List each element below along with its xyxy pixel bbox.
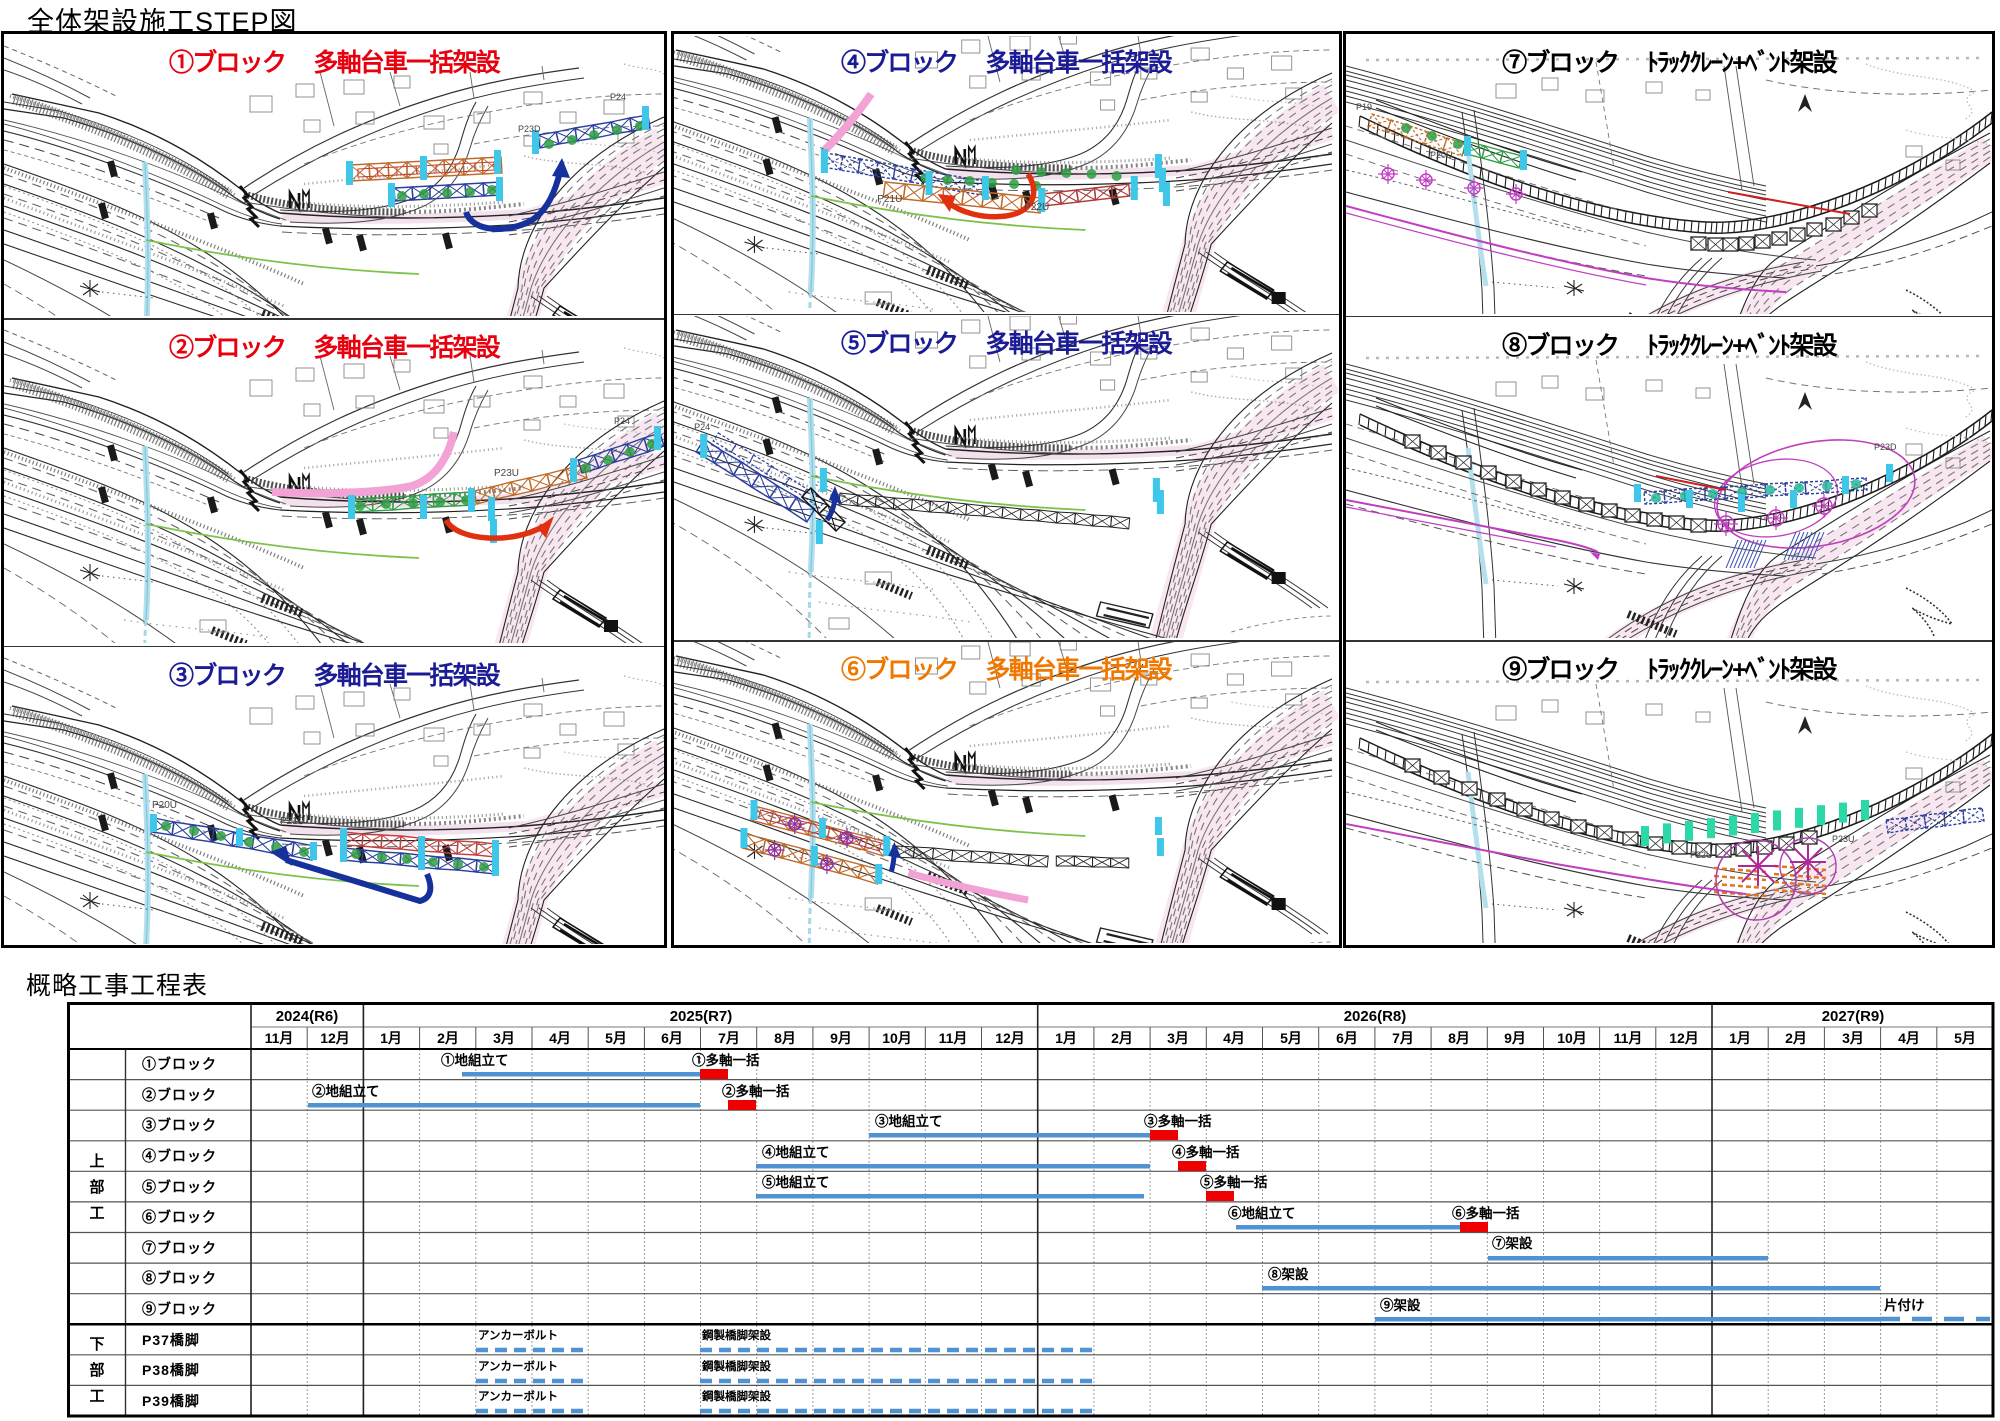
svg-text:部: 部 <box>89 1361 104 1379</box>
svg-text:9月: 9月 <box>1504 1030 1526 1046</box>
svg-text:⑤地組立て: ⑤地組立て <box>762 1174 830 1190</box>
svg-text:③多軸一括: ③多軸一括 <box>1144 1113 1212 1129</box>
svg-text:③地組立て: ③地組立て <box>875 1113 943 1129</box>
svg-text:②多軸一括: ②多軸一括 <box>722 1083 790 1099</box>
svg-text:2月: 2月 <box>1111 1030 1133 1046</box>
svg-text:①多軸一括: ①多軸一括 <box>692 1052 760 1068</box>
svg-text:③ブロック: ③ブロック <box>142 1117 217 1133</box>
svg-text:部: 部 <box>89 1178 104 1196</box>
svg-text:12月: 12月 <box>320 1030 350 1046</box>
svg-text:4月: 4月 <box>1223 1030 1245 1046</box>
svg-text:5月: 5月 <box>1280 1030 1302 1046</box>
svg-text:3月: 3月 <box>1167 1030 1189 1046</box>
svg-text:2027(R9): 2027(R9) <box>1822 1008 1885 1025</box>
svg-text:5月: 5月 <box>1954 1030 1976 1046</box>
svg-text:P39橋脚: P39橋脚 <box>142 1393 200 1409</box>
svg-text:⑦ブロック: ⑦ブロック <box>142 1240 217 1256</box>
svg-text:アンカーボルト: アンカーボルト <box>478 1328 558 1342</box>
svg-text:④ブロック: ④ブロック <box>142 1148 217 1164</box>
svg-text:⑨架設: ⑨架設 <box>1380 1297 1421 1313</box>
svg-text:2026(R8): 2026(R8) <box>1344 1008 1407 1025</box>
svg-text:2025(R7): 2025(R7) <box>670 1008 733 1025</box>
svg-text:工: 工 <box>89 1388 104 1405</box>
svg-text:2月: 2月 <box>1785 1030 1807 1046</box>
svg-text:10月: 10月 <box>1557 1030 1587 1046</box>
svg-text:①ブロック: ①ブロック <box>142 1056 217 1072</box>
svg-text:8月: 8月 <box>774 1030 796 1046</box>
svg-text:4月: 4月 <box>1898 1030 1920 1046</box>
svg-text:下: 下 <box>89 1336 104 1353</box>
svg-text:3月: 3月 <box>493 1030 515 1046</box>
svg-text:⑤多軸一括: ⑤多軸一括 <box>1200 1174 1268 1190</box>
svg-text:7月: 7月 <box>718 1030 740 1046</box>
svg-text:④地組立て: ④地組立て <box>762 1144 830 1160</box>
svg-text:1月: 1月 <box>1729 1030 1751 1046</box>
svg-text:4月: 4月 <box>549 1030 571 1046</box>
svg-text:8月: 8月 <box>1448 1030 1470 1046</box>
svg-text:12月: 12月 <box>1669 1030 1699 1046</box>
svg-text:鋼製橋脚架設: 鋼製橋脚架設 <box>701 1389 771 1403</box>
svg-text:6月: 6月 <box>661 1030 683 1046</box>
svg-text:⑥地組立て: ⑥地組立て <box>1228 1205 1296 1221</box>
svg-text:上: 上 <box>89 1153 104 1170</box>
svg-text:2月: 2月 <box>437 1030 459 1046</box>
svg-text:5月: 5月 <box>605 1030 627 1046</box>
svg-text:2024(R6): 2024(R6) <box>276 1008 339 1025</box>
svg-text:10月: 10月 <box>882 1030 912 1046</box>
svg-text:12月: 12月 <box>995 1030 1025 1046</box>
svg-text:7月: 7月 <box>1392 1030 1414 1046</box>
svg-text:1月: 1月 <box>380 1030 402 1046</box>
svg-text:⑥ブロック: ⑥ブロック <box>142 1209 217 1225</box>
svg-text:工: 工 <box>89 1205 104 1222</box>
svg-text:①地組立て: ①地組立て <box>441 1052 509 1068</box>
svg-text:アンカーボルト: アンカーボルト <box>478 1389 558 1403</box>
svg-text:鋼製橋脚架設: 鋼製橋脚架設 <box>701 1328 771 1342</box>
svg-text:アンカーボルト: アンカーボルト <box>478 1359 558 1373</box>
svg-text:⑥多軸一括: ⑥多軸一括 <box>1452 1205 1520 1221</box>
svg-text:P37橋脚: P37橋脚 <box>142 1332 200 1348</box>
svg-text:1月: 1月 <box>1055 1030 1077 1046</box>
svg-text:11月: 11月 <box>1614 1030 1643 1046</box>
svg-text:④多軸一括: ④多軸一括 <box>1172 1144 1240 1160</box>
svg-text:⑤ブロック: ⑤ブロック <box>142 1179 217 1195</box>
svg-text:鋼製橋脚架設: 鋼製橋脚架設 <box>701 1359 771 1373</box>
svg-text:11月: 11月 <box>265 1030 294 1046</box>
svg-text:P38橋脚: P38橋脚 <box>142 1362 200 1378</box>
svg-text:②ブロック: ②ブロック <box>142 1087 217 1103</box>
svg-text:片付け: 片付け <box>1884 1297 1925 1313</box>
svg-text:②地組立て: ②地組立て <box>312 1083 380 1099</box>
svg-text:11月: 11月 <box>939 1030 968 1046</box>
svg-text:6月: 6月 <box>1336 1030 1358 1046</box>
svg-text:⑨ブロック: ⑨ブロック <box>142 1301 217 1317</box>
svg-text:⑧ブロック: ⑧ブロック <box>142 1270 217 1286</box>
svg-text:3月: 3月 <box>1842 1030 1864 1046</box>
svg-text:9月: 9月 <box>830 1030 852 1046</box>
svg-text:⑧架設: ⑧架設 <box>1268 1266 1309 1282</box>
svg-text:⑦架設: ⑦架設 <box>1492 1235 1533 1251</box>
